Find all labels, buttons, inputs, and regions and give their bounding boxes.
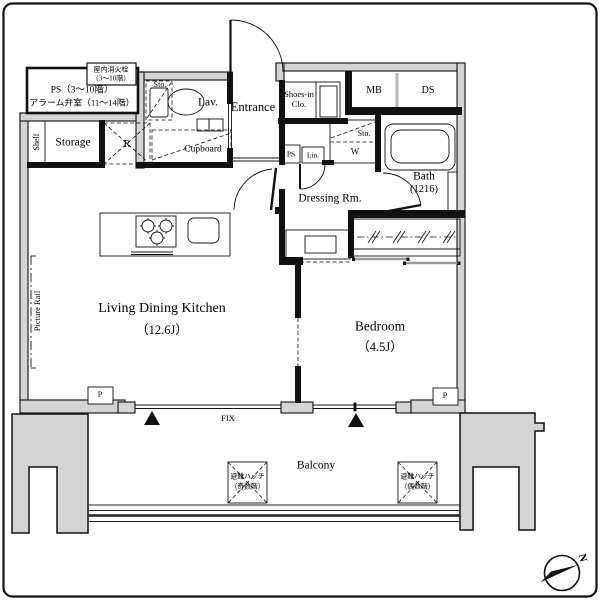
label-duct-space: DS (422, 86, 435, 96)
label-bedroom: Bedroom (355, 319, 405, 333)
label-bath-size: (1216) (410, 185, 438, 196)
label-sto-lav: Sto. (154, 81, 167, 89)
label-shoes-2: Clo. (292, 100, 306, 109)
label-storage: Storage (55, 137, 90, 149)
label-hydrant-2: （3～10階） (92, 76, 131, 83)
label-ldk-size: （12.6J） (136, 324, 188, 337)
room-living-dining-kitchen (28, 168, 294, 400)
label-pillar-right: P (443, 392, 447, 400)
label-bath: Bath (413, 171, 435, 183)
label-ps-room-1: PS（3～10階） (51, 86, 114, 96)
label-ps-room-2: アラーム弁室（11～14階） (30, 99, 135, 108)
label-shelf: Shelf (33, 134, 41, 151)
label-dressing: Dressing Rm. (298, 193, 361, 205)
label-hatch-odd-1: 避難ハッチ (231, 475, 265, 482)
label-bedroom-size: （4.5J） (357, 341, 403, 354)
label-hatch-even-2: （偶数階） (401, 485, 435, 492)
label-picture-rail: Picture Rail (33, 291, 42, 331)
label-hatch-even-1: 避難ハッチ (401, 475, 435, 482)
label-balcony: Balcony (297, 460, 335, 472)
label-refrigerator: R (124, 140, 131, 150)
label-sto-laundry: Sto. (358, 130, 371, 138)
label-pipe-shaft: PS (287, 150, 295, 158)
label-ldk: Living Dining Kitchen (98, 302, 226, 316)
label-hydrant-1: 屋内消火栓 (94, 67, 129, 74)
label-meter-box: MB (366, 86, 382, 96)
label-shoes-1: Shoes-in (284, 90, 314, 99)
floor-plan: PS（3～10階） アラーム弁室（11～14階） 屋内消火栓 （3～10階） S… (0, 0, 600, 600)
room-dressing (285, 165, 375, 258)
room-entrance (233, 72, 278, 162)
label-cupboard: Cupboard (184, 145, 221, 155)
label-linen: Lin. (307, 151, 319, 159)
label-entrance: Entrance (231, 101, 275, 114)
room-balcony (88, 413, 460, 523)
label-hatch-odd-2: （奇数階） (231, 485, 265, 492)
label-washer: W (351, 148, 360, 157)
room-areas (28, 72, 460, 523)
label-fix-window: FIX (221, 414, 235, 423)
room-bath (381, 115, 457, 210)
label-pillar-left: P (98, 391, 102, 399)
label-lavatory: Lav. (198, 97, 218, 109)
